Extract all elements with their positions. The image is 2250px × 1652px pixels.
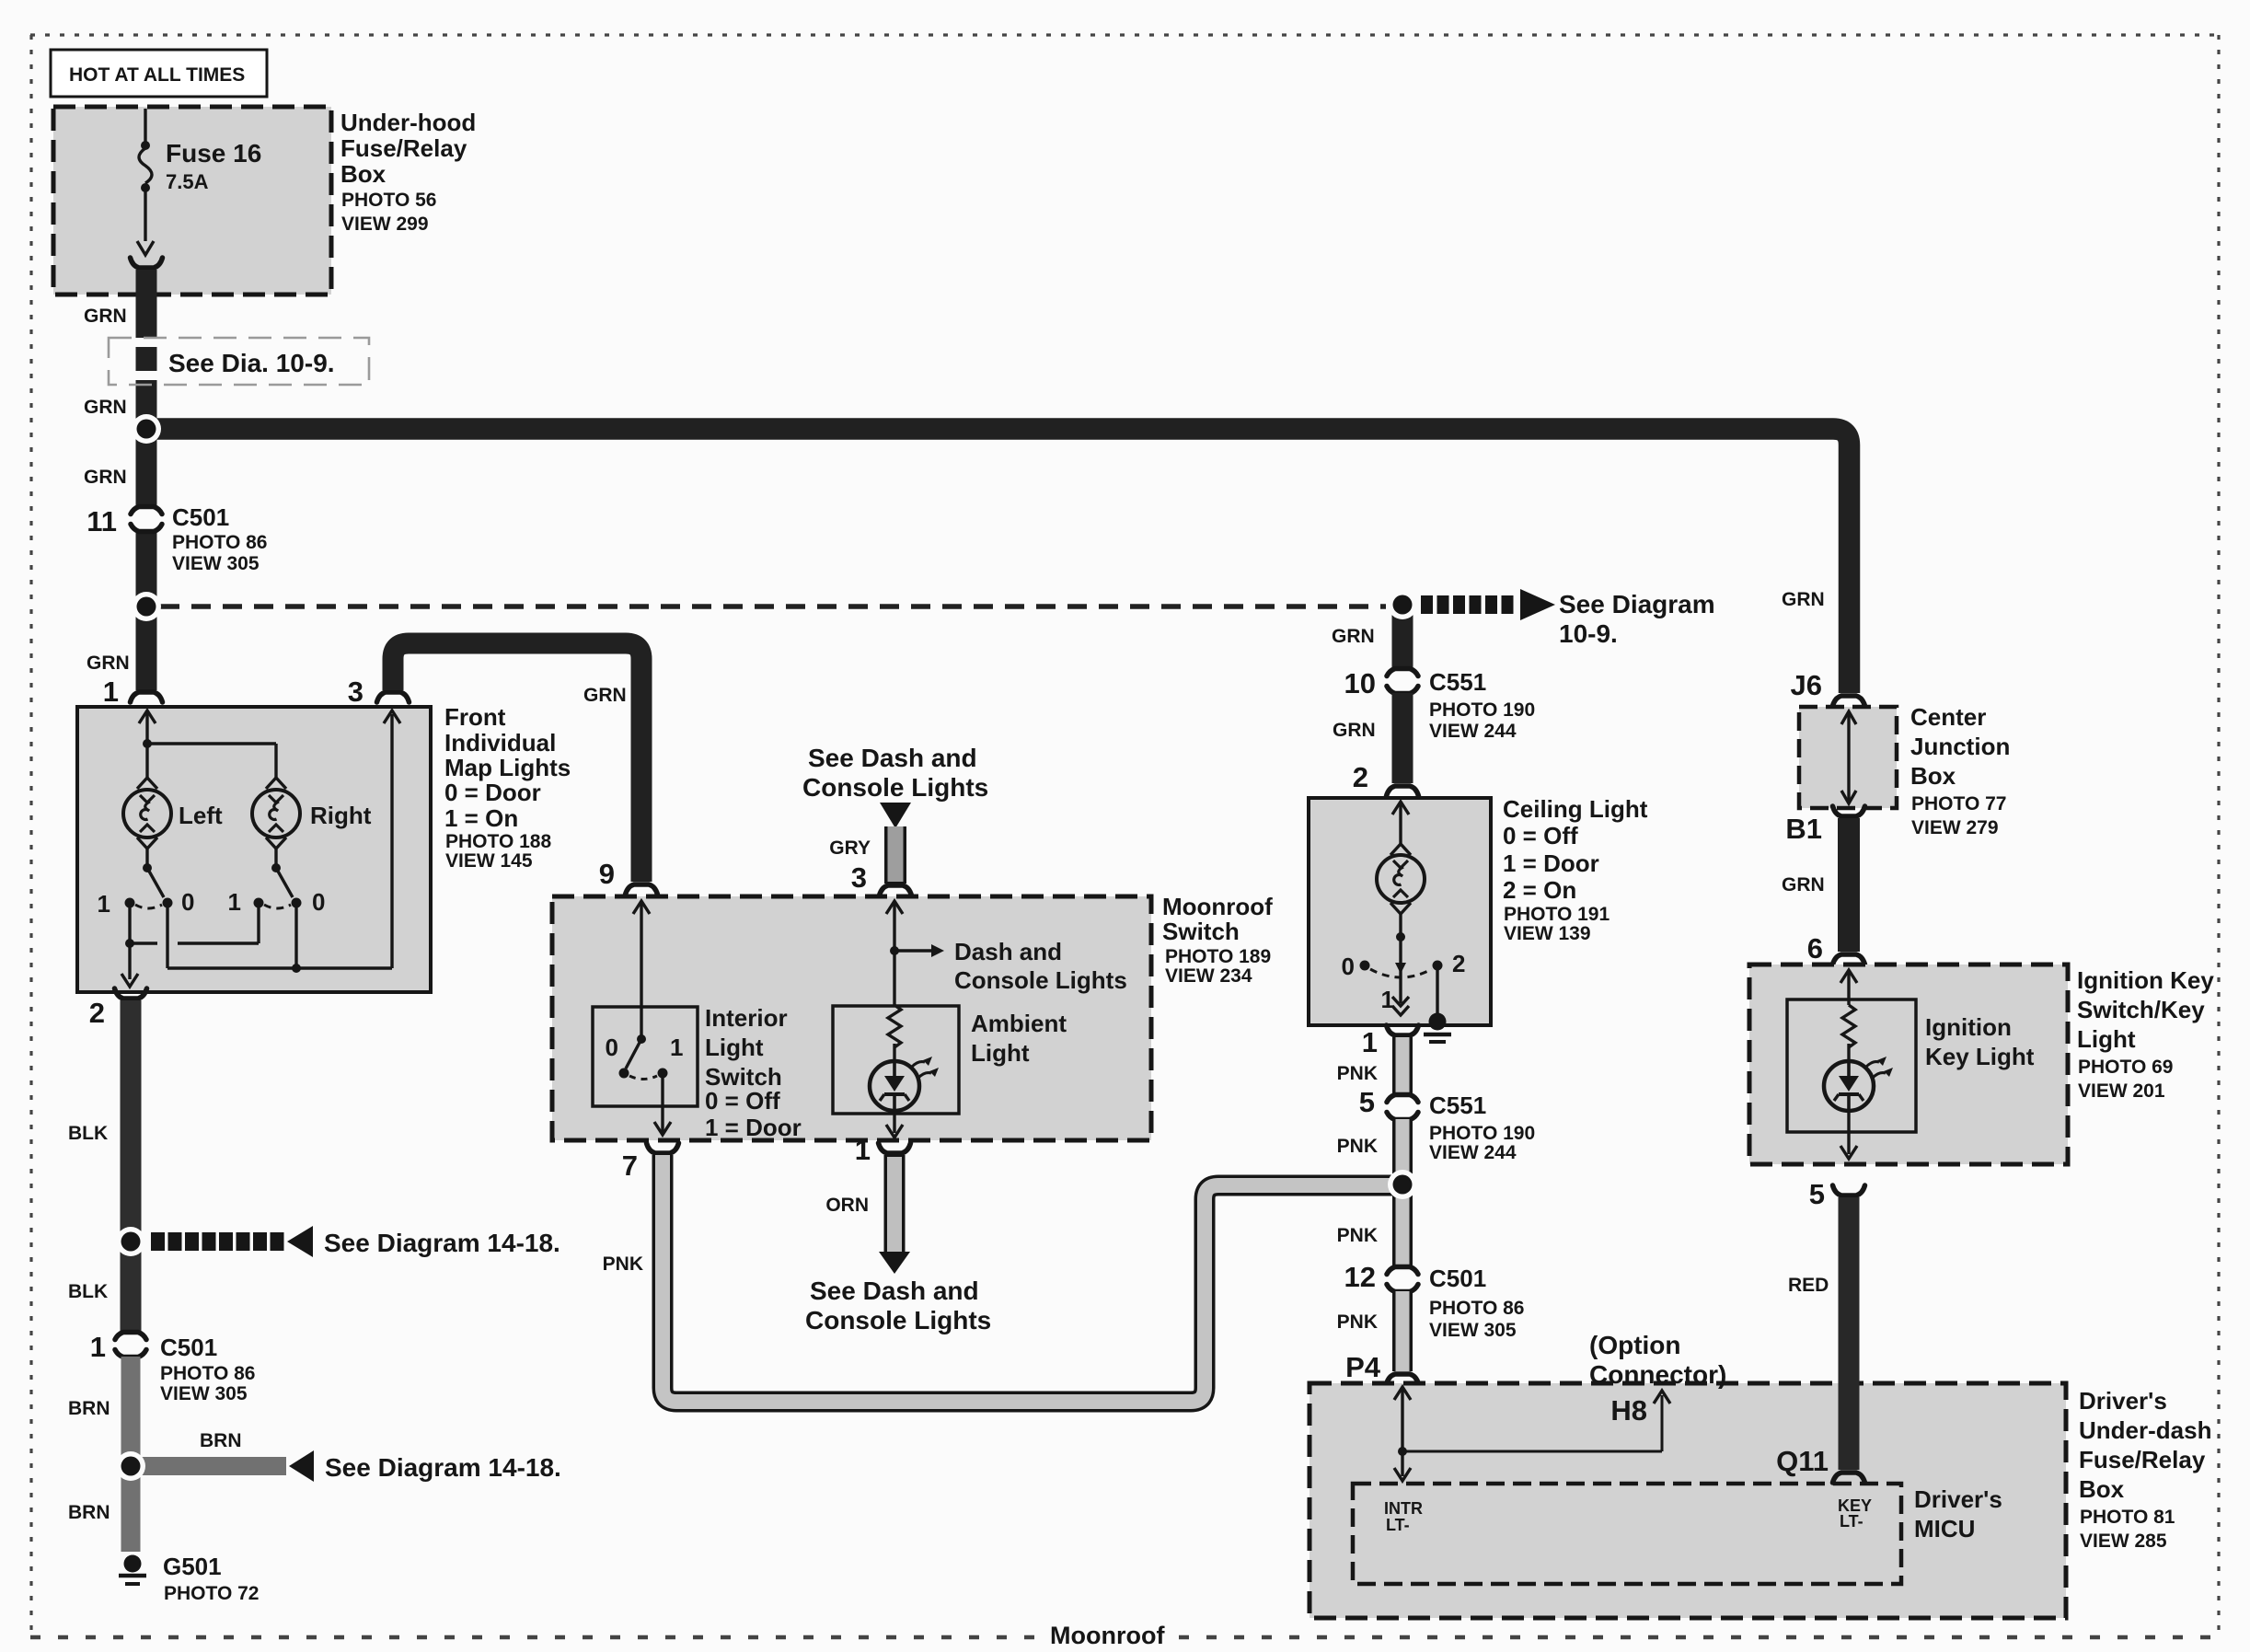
svg-text:0: 0 xyxy=(181,888,194,916)
svg-text:Console Lights: Console Lights xyxy=(802,773,988,802)
svg-text:1: 1 xyxy=(98,890,110,918)
svg-text:7.5A: 7.5A xyxy=(166,170,209,193)
svg-text:See Dash and: See Dash and xyxy=(808,744,977,772)
svg-text:PHOTO 69: PHOTO 69 xyxy=(2078,1057,2173,1078)
svg-text:Ignition: Ignition xyxy=(1925,1013,2012,1041)
svg-text:Junction: Junction xyxy=(1910,733,2010,760)
svg-text:Front: Front xyxy=(444,703,506,731)
svg-text:C551: C551 xyxy=(1429,668,1486,696)
svg-text:BRN: BRN xyxy=(68,1502,110,1523)
svg-text:0 = Off: 0 = Off xyxy=(1503,822,1578,849)
svg-text:VIEW 234: VIEW 234 xyxy=(1165,965,1252,987)
svg-text:Under-dash: Under-dash xyxy=(2079,1416,2211,1444)
svg-text:1: 1 xyxy=(103,676,119,708)
svg-text:1 = Door: 1 = Door xyxy=(1503,849,1599,877)
svg-text:Ceiling Light: Ceiling Light xyxy=(1503,795,1648,823)
svg-text:Box: Box xyxy=(1910,762,1956,790)
svg-text:6: 6 xyxy=(1807,932,1823,965)
svg-text:RED: RED xyxy=(1788,1275,1829,1296)
svg-text:0: 0 xyxy=(1342,953,1355,980)
svg-text:INTR: INTR xyxy=(1384,1499,1423,1518)
svg-text:VIEW 305: VIEW 305 xyxy=(1429,1320,1517,1341)
svg-text:PHOTO 190: PHOTO 190 xyxy=(1429,1123,1535,1144)
svg-text:PHOTO 86: PHOTO 86 xyxy=(1429,1298,1524,1319)
svg-text:P4: P4 xyxy=(1345,1351,1381,1383)
svg-text:GRN: GRN xyxy=(84,397,127,418)
svg-text:VIEW 244: VIEW 244 xyxy=(1429,1142,1517,1163)
svg-text:Under-hood: Under-hood xyxy=(340,109,476,136)
svg-text:C551: C551 xyxy=(1429,1092,1486,1119)
svg-text:Light: Light xyxy=(2077,1025,2136,1053)
svg-text:Driver's: Driver's xyxy=(1914,1485,2002,1513)
svg-text:PNK: PNK xyxy=(1337,1063,1378,1084)
svg-text:C501: C501 xyxy=(172,503,229,531)
svg-text:VIEW 244: VIEW 244 xyxy=(1429,721,1517,742)
svg-text:2 = On: 2 = On xyxy=(1503,876,1576,904)
svg-text:Left: Left xyxy=(179,802,223,829)
svg-text:VIEW 285: VIEW 285 xyxy=(2080,1531,2167,1552)
svg-text:Console Lights: Console Lights xyxy=(954,966,1127,994)
svg-text:VIEW 279: VIEW 279 xyxy=(1911,817,1999,838)
svg-text:Light: Light xyxy=(705,1034,764,1061)
svg-text:1: 1 xyxy=(228,888,241,916)
svg-text:GRN: GRN xyxy=(1333,720,1376,741)
svg-text:9: 9 xyxy=(599,858,615,890)
svg-text:VIEW 201: VIEW 201 xyxy=(2078,1080,2165,1102)
svg-text:GRY: GRY xyxy=(829,838,871,859)
svg-text:Driver's: Driver's xyxy=(2079,1387,2167,1415)
svg-text:See Diagram: See Diagram xyxy=(1559,590,1715,618)
svg-text:Moonroof: Moonroof xyxy=(1162,893,1273,920)
svg-text:Map Lights: Map Lights xyxy=(444,754,571,781)
svg-text:0: 0 xyxy=(312,888,325,916)
svg-text:Ignition Key: Ignition Key xyxy=(2077,966,2214,994)
svg-text:See Diagram 14-18.: See Diagram 14-18. xyxy=(325,1453,561,1482)
svg-text:LT-: LT- xyxy=(1840,1512,1863,1531)
svg-text:1: 1 xyxy=(1362,1026,1378,1058)
svg-text:Interior: Interior xyxy=(705,1004,788,1032)
svg-text:7: 7 xyxy=(622,1149,638,1182)
svg-text:5: 5 xyxy=(1809,1178,1825,1210)
svg-text:BLK: BLK xyxy=(68,1123,108,1144)
svg-text:1: 1 xyxy=(670,1034,683,1061)
svg-text:1: 1 xyxy=(1381,986,1394,1013)
svg-text:GRN: GRN xyxy=(1782,874,1825,895)
svg-text:1: 1 xyxy=(855,1134,871,1166)
svg-text:Ambient: Ambient xyxy=(971,1010,1067,1037)
svg-text:Box: Box xyxy=(340,160,387,188)
svg-text:Key Light: Key Light xyxy=(1925,1043,2035,1070)
svg-text:GRN: GRN xyxy=(1332,626,1375,647)
svg-text:See Diagram 14-18.: See Diagram 14-18. xyxy=(324,1229,560,1257)
svg-text:1 = Door: 1 = Door xyxy=(705,1114,802,1141)
svg-text:ORN: ORN xyxy=(825,1195,869,1216)
svg-text:0 = Off: 0 = Off xyxy=(705,1087,780,1115)
svg-text:See Dia. 10-9.: See Dia. 10-9. xyxy=(168,349,335,377)
svg-text:BRN: BRN xyxy=(200,1430,242,1451)
svg-text:BRN: BRN xyxy=(68,1398,110,1419)
svg-text:VIEW 305: VIEW 305 xyxy=(160,1383,248,1404)
svg-text:11: 11 xyxy=(87,505,117,537)
svg-text:VIEW 305: VIEW 305 xyxy=(172,553,260,574)
svg-text:PNK: PNK xyxy=(603,1253,643,1275)
svg-text:PHOTO 72: PHOTO 72 xyxy=(164,1583,259,1604)
svg-text:PNK: PNK xyxy=(1337,1311,1378,1333)
svg-text:Individual: Individual xyxy=(444,729,556,757)
svg-text:B1: B1 xyxy=(1785,813,1822,845)
svg-text:PHOTO 86: PHOTO 86 xyxy=(160,1363,255,1384)
svg-text:VIEW 299: VIEW 299 xyxy=(341,214,429,235)
svg-text:BLK: BLK xyxy=(68,1281,108,1302)
svg-text:GRN: GRN xyxy=(84,306,127,327)
svg-text:1 = On: 1 = On xyxy=(444,804,518,832)
svg-text:C501: C501 xyxy=(160,1334,217,1361)
svg-text:VIEW 145: VIEW 145 xyxy=(445,850,533,872)
svg-text:Dash and: Dash and xyxy=(954,938,1062,965)
svg-text:J6: J6 xyxy=(1791,669,1822,701)
svg-text:(Option: (Option xyxy=(1589,1331,1681,1359)
svg-text:HOT AT ALL TIMES: HOT AT ALL TIMES xyxy=(69,64,245,86)
svg-text:Fuse/Relay: Fuse/Relay xyxy=(2079,1446,2206,1473)
svg-text:PHOTO 189: PHOTO 189 xyxy=(1165,946,1271,967)
svg-text:GRN: GRN xyxy=(583,685,627,706)
svg-text:Switch: Switch xyxy=(1162,918,1240,945)
svg-text:Right: Right xyxy=(310,802,372,829)
svg-text:Q11: Q11 xyxy=(1776,1445,1829,1477)
svg-text:GRN: GRN xyxy=(84,467,127,488)
svg-text:G501: G501 xyxy=(163,1553,222,1580)
svg-text:Switch/Key: Switch/Key xyxy=(2077,996,2205,1023)
svg-text:See Dash and: See Dash and xyxy=(810,1277,979,1305)
svg-text:PHOTO 77: PHOTO 77 xyxy=(1911,793,2006,814)
svg-text:2: 2 xyxy=(89,997,105,1029)
svg-text:PHOTO 56: PHOTO 56 xyxy=(341,190,436,211)
svg-text:PHOTO 86: PHOTO 86 xyxy=(172,532,267,553)
svg-text:1: 1 xyxy=(90,1331,106,1363)
svg-text:PNK: PNK xyxy=(1337,1225,1378,1246)
svg-text:0 = Door: 0 = Door xyxy=(444,779,541,806)
svg-text:PHOTO 81: PHOTO 81 xyxy=(2080,1507,2175,1528)
svg-text:5: 5 xyxy=(1359,1086,1375,1118)
svg-text:PHOTO 191: PHOTO 191 xyxy=(1504,904,1610,925)
svg-text:3: 3 xyxy=(348,676,363,708)
svg-text:Console Lights: Console Lights xyxy=(805,1306,991,1334)
svg-text:VIEW 139: VIEW 139 xyxy=(1504,923,1591,944)
svg-text:GRN: GRN xyxy=(87,653,130,674)
svg-text:GRN: GRN xyxy=(1782,589,1825,610)
svg-text:C501: C501 xyxy=(1429,1265,1486,1292)
svg-text:PNK: PNK xyxy=(1337,1136,1378,1157)
svg-text:2: 2 xyxy=(1353,761,1368,793)
svg-text:10: 10 xyxy=(1344,667,1376,699)
svg-text:10-9.: 10-9. xyxy=(1559,619,1618,648)
svg-text:Connector): Connector) xyxy=(1589,1360,1726,1389)
svg-text:MICU: MICU xyxy=(1914,1515,1975,1542)
svg-text:0: 0 xyxy=(606,1034,618,1061)
svg-text:Moonroof: Moonroof xyxy=(1050,1622,1165,1649)
svg-text:3: 3 xyxy=(851,861,867,894)
svg-text:2: 2 xyxy=(1452,950,1465,977)
svg-text:PHOTO 188: PHOTO 188 xyxy=(445,831,551,852)
svg-text:Light: Light xyxy=(971,1039,1030,1067)
svg-text:Center: Center xyxy=(1910,703,1986,731)
svg-text:Fuse/Relay: Fuse/Relay xyxy=(340,134,467,162)
svg-text:LT-: LT- xyxy=(1386,1516,1410,1534)
svg-text:12: 12 xyxy=(1344,1261,1376,1293)
svg-text:PHOTO 190: PHOTO 190 xyxy=(1429,699,1535,721)
svg-text:Box: Box xyxy=(2079,1475,2125,1503)
svg-text:H8: H8 xyxy=(1610,1394,1647,1427)
svg-text:Fuse 16: Fuse 16 xyxy=(166,139,261,168)
